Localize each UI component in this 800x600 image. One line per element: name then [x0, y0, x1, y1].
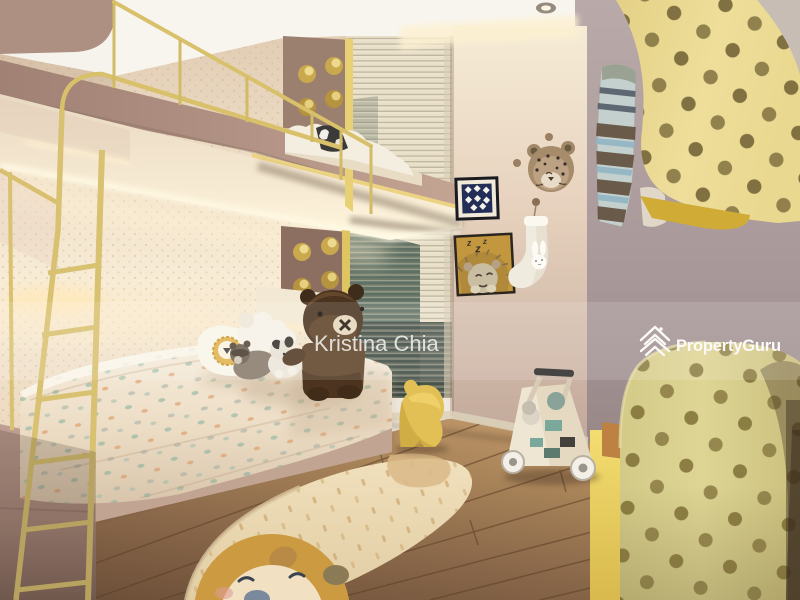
svg-text:z: z: [474, 243, 482, 255]
svg-text:Kristina Chia: Kristina Chia: [314, 331, 439, 356]
svg-text:z: z: [466, 238, 473, 248]
svg-text:z: z: [482, 237, 487, 246]
svg-text:PropertyGuru: PropertyGuru: [676, 337, 781, 355]
